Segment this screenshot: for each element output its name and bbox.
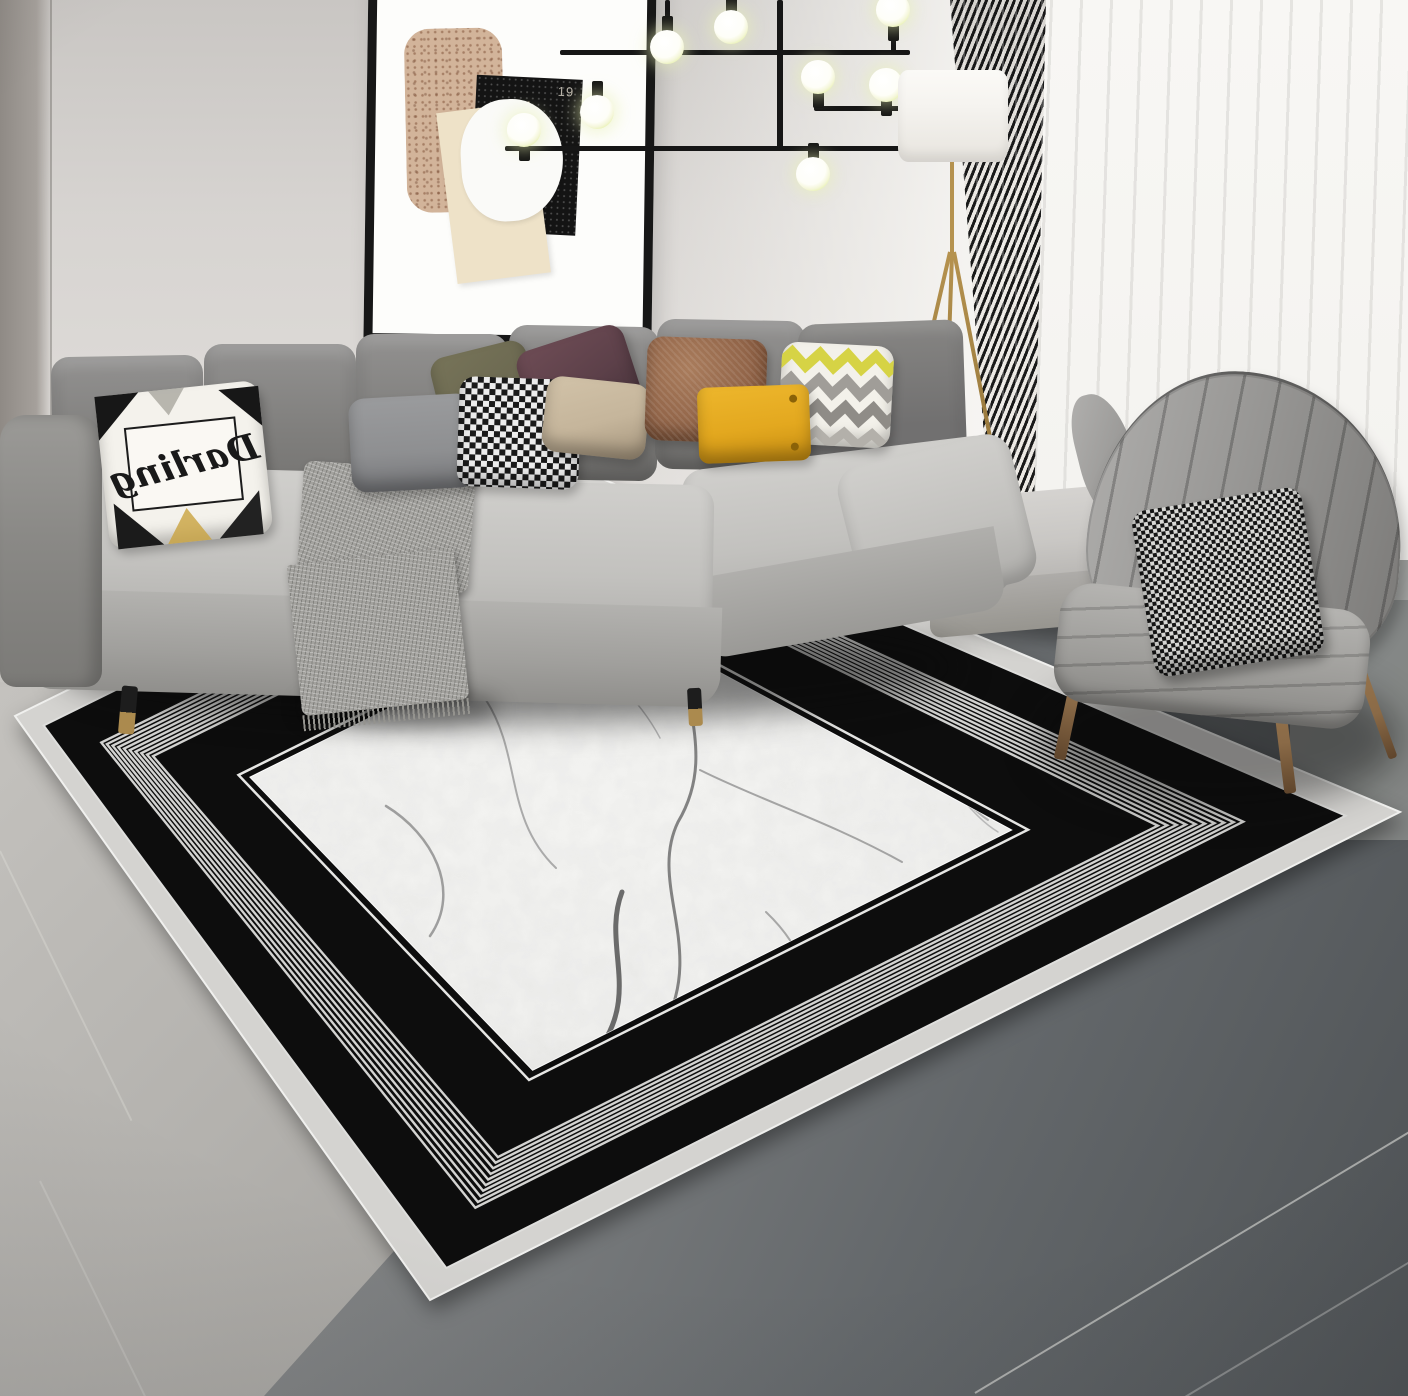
- sofa-armrest: [0, 415, 102, 687]
- pillow-script-word: Darling: [105, 425, 263, 503]
- pillow-darling-script: Darling: [94, 380, 273, 550]
- armchair-houndstooth-cushion: [1130, 486, 1326, 679]
- living-room-scene: 19: [0, 0, 1408, 1396]
- pillow-tan: [540, 375, 651, 461]
- pillow-mustard-yellow: [697, 384, 812, 464]
- triangle-motif: [165, 506, 212, 544]
- sofa-leg: [687, 688, 703, 727]
- throw-blanket-drape: [287, 548, 470, 717]
- triangle-motif: [148, 388, 187, 418]
- pillow-text-panel: Darling: [124, 416, 244, 511]
